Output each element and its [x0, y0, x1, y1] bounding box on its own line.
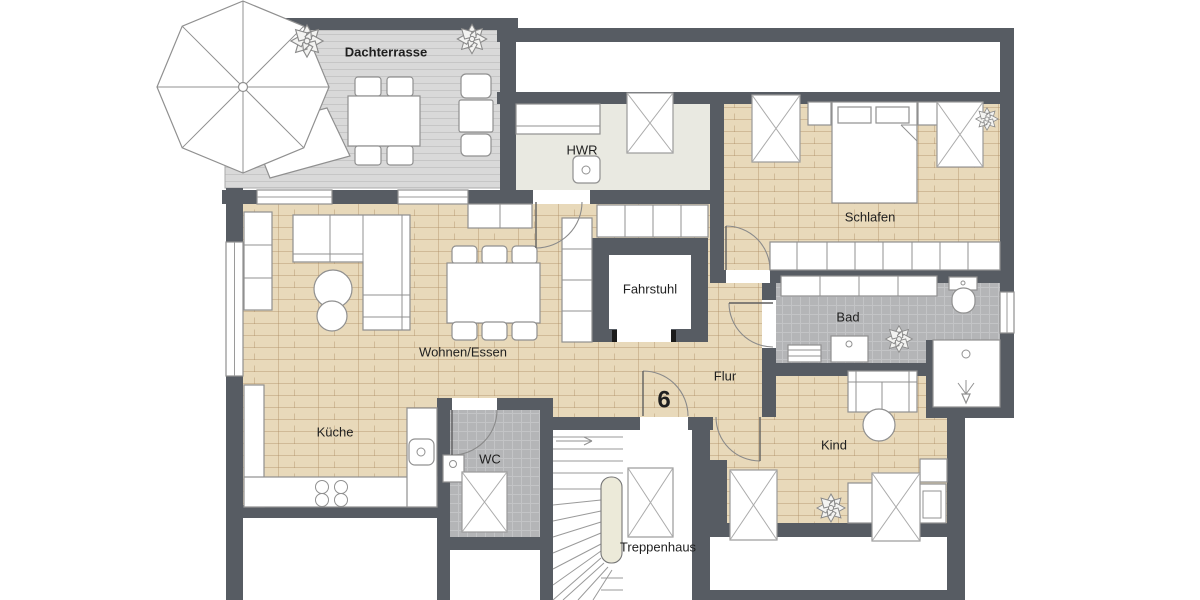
utility-sink: [573, 156, 600, 183]
toilet-bowl: [952, 288, 975, 313]
utility-counter: [516, 104, 600, 134]
plant-icon: [291, 25, 323, 57]
label-wc: WC: [479, 451, 501, 466]
terrace-chair: [387, 77, 413, 96]
doorway-bath: [762, 300, 776, 348]
doorway-utility: [533, 190, 590, 204]
bath-sink: [831, 336, 868, 362]
wardrobe-row: [770, 242, 1000, 270]
dining-chair: [512, 246, 537, 264]
lounger-head: [461, 74, 491, 98]
dining-chair: [452, 322, 477, 340]
wall-utility-bedroom-divider: [710, 92, 724, 283]
child-shelf: [920, 459, 947, 482]
label-bath: Bad: [836, 309, 859, 324]
label-elevator: Fahrstuhl: [623, 281, 677, 296]
coffee-table: [317, 301, 347, 331]
dining-chair: [512, 322, 537, 340]
label-bedroom: Schlafen: [845, 209, 896, 224]
living-shelf: [244, 212, 272, 310]
wc-furniture: [443, 455, 464, 482]
wall-living-top-c: [468, 190, 533, 204]
label-terrace: Dachterrasse: [345, 44, 427, 59]
wall-utility-south: [590, 190, 724, 204]
lounger-seat: [459, 100, 493, 132]
terrace-chair: [355, 77, 381, 96]
skylight-icon: [462, 472, 507, 532]
plant-icon: [457, 24, 486, 53]
dining-chair: [482, 322, 507, 340]
wall-wc-north-b: [497, 398, 540, 410]
wall-lower-right: [947, 417, 965, 600]
wall-bath-west-b: [762, 348, 776, 417]
label-hall: Flur: [714, 368, 737, 383]
plant-icon: [886, 326, 913, 353]
dining-chair: [482, 246, 507, 264]
skylight-icon: [872, 473, 920, 541]
nightstand-right: [918, 102, 939, 125]
skylight-icon: [752, 95, 800, 162]
wc-sink: [443, 455, 464, 482]
doorway-wc: [452, 398, 497, 410]
elevator-jamb-left: [612, 330, 617, 342]
wall-bottom: [692, 590, 965, 600]
wall-wc-west: [437, 398, 450, 600]
dining-chair: [452, 246, 477, 264]
label-unit-number: 6: [657, 386, 670, 413]
label-kitchen: Küche: [317, 424, 354, 439]
child-desk: [918, 484, 946, 523]
nightstand-left: [808, 102, 831, 125]
label-stairs: Treppenhaus: [620, 539, 697, 554]
plant-icon: [817, 494, 845, 522]
pillow: [838, 107, 871, 123]
doorway-entry: [640, 417, 688, 430]
umbrella-icon: [157, 1, 329, 173]
plant-icon: [976, 108, 998, 130]
lounger-foot: [461, 134, 491, 156]
skylight-icon: [627, 93, 673, 153]
terrace-table: [348, 96, 420, 146]
terrace-chair: [387, 146, 413, 165]
elevator-door-gap: [617, 329, 671, 342]
label-utility: HWR: [566, 142, 597, 157]
wall-living-top-b: [332, 190, 398, 204]
dining-table: [447, 263, 540, 323]
wall-living-top-a: [222, 190, 257, 204]
skylight-icon: [937, 102, 983, 167]
wall-wc-east: [540, 398, 553, 600]
skylight-icon: [628, 468, 673, 537]
child-table: [863, 409, 895, 441]
elevator-jamb-right: [671, 330, 676, 342]
wall-outer-right: [1000, 28, 1014, 418]
kitchen-sink: [409, 439, 434, 465]
label-child: Kind: [821, 437, 847, 452]
wall-roof-top: [497, 28, 1014, 42]
wall-stairs-north-a: [540, 417, 640, 430]
wall-terrace-right: [500, 18, 516, 204]
terrace-chair: [355, 146, 381, 165]
floor-plan-page: Dachterrasse HWR Schlafen Fahrstuhl Wohn…: [0, 0, 1200, 600]
stair-rail: [601, 477, 622, 563]
radiator: [788, 345, 821, 362]
wall-wc-north-a: [437, 398, 452, 410]
pillow: [876, 107, 909, 123]
label-living: Wohnen/Essen: [419, 344, 507, 359]
child-cabinet: [848, 483, 873, 523]
skylight-icon: [730, 470, 777, 540]
wall-bath-west-a: [762, 283, 776, 300]
wall-wc-south: [437, 537, 553, 550]
floor-plan-drawing: Dachterrasse HWR Schlafen Fahrstuhl Wohn…: [0, 0, 1200, 600]
elevator: [609, 255, 691, 342]
doorway-bedroom: [726, 270, 770, 283]
wall-stairs-east: [692, 417, 710, 600]
wall-bedroom-south-a: [710, 270, 726, 283]
